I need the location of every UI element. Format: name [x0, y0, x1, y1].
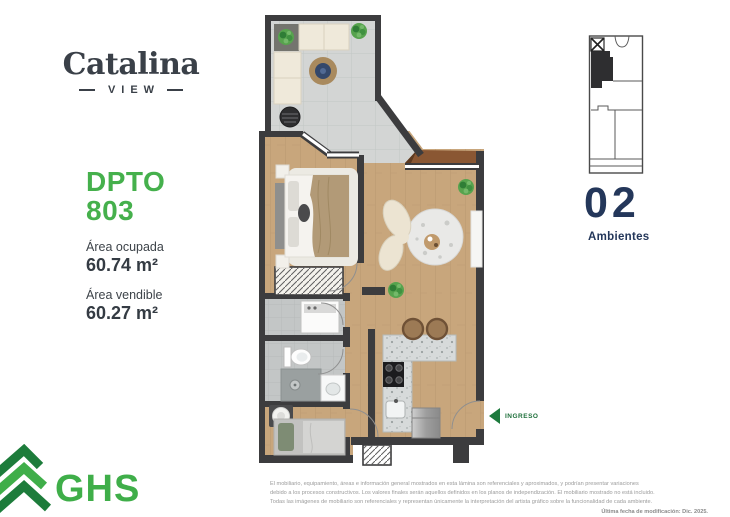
grill: [280, 107, 300, 127]
project-logo: Catalina VIEW: [40, 50, 222, 96]
disclaimer-line-1: El mobiliario, equipamiento, áreas e inf…: [270, 480, 708, 489]
stool-1: [403, 319, 423, 339]
lamina-sheet: { "branding": { "title": "Catalina", "su…: [0, 0, 730, 516]
coffee-table: [424, 234, 440, 250]
bath-sink: [326, 383, 340, 395]
pillow-1: [288, 181, 299, 211]
area-ocupada-value: 60.74 m²: [86, 255, 164, 276]
project-logo-subtitle: VIEW: [102, 84, 160, 96]
area-vendible-label: Área vendible: [86, 288, 162, 302]
bed-headboard: [275, 183, 285, 249]
unit-number-block: DPTO 803: [86, 168, 165, 225]
bed-2-duvet: [303, 421, 344, 453]
stool-2: [427, 319, 447, 339]
entrance-label: INGRESO: [505, 413, 538, 420]
living-plant-icon: [458, 179, 474, 195]
entry-cabinet: [363, 445, 391, 465]
ghs-logo-text: GHS: [55, 468, 140, 511]
unit-number: 803: [86, 197, 165, 226]
area-ocupada-block: Área ocupada 60.74 m²: [86, 240, 164, 276]
entrance-arrow-icon: [489, 408, 500, 424]
shower: [281, 369, 321, 401]
hall-plant-icon: [388, 282, 404, 298]
ambientes-count: 02: [584, 182, 640, 225]
entrance-indicator: INGRESO: [489, 408, 538, 424]
logo-dash-left: [79, 89, 95, 91]
kitchen-sink: [386, 401, 405, 418]
logo-dash-right: [167, 89, 183, 91]
area-vendible-block: Área vendible 60.27 m²: [86, 288, 162, 324]
tv-console: [471, 211, 482, 267]
bed-2-pillow: [278, 423, 294, 451]
project-logo-subtitle-row: VIEW: [40, 84, 222, 96]
area-ocupada-label: Área ocupada: [86, 240, 164, 254]
kitchen-counter-bar: [383, 335, 456, 361]
area-vendible-value: 60.27 m²: [86, 303, 162, 324]
ghs-logo-icon: [0, 444, 58, 516]
disclaimer-line-3: Todas las imágenes de mobiliario son ref…: [270, 498, 708, 507]
bedroom-1-furniture: [275, 165, 358, 268]
project-logo-title: Catalina: [40, 50, 222, 80]
disclaimer-line-2: debido a los procesos constructivos. Los…: [270, 489, 708, 498]
floor-plan: [255, 5, 500, 470]
key-plan: [588, 33, 644, 177]
pillow-2: [288, 217, 299, 247]
unit-label: DPTO: [86, 168, 165, 197]
accent-pillow: [298, 204, 310, 222]
disclaimer-block: El mobiliario, equipamiento, áreas e inf…: [270, 480, 708, 517]
ambientes-label: Ambientes: [588, 231, 650, 243]
toilet-tank: [284, 347, 291, 367]
fridge: [412, 408, 440, 438]
terrace-plant-1-icon: [278, 29, 294, 45]
terrace-plant-2-icon: [351, 23, 367, 39]
